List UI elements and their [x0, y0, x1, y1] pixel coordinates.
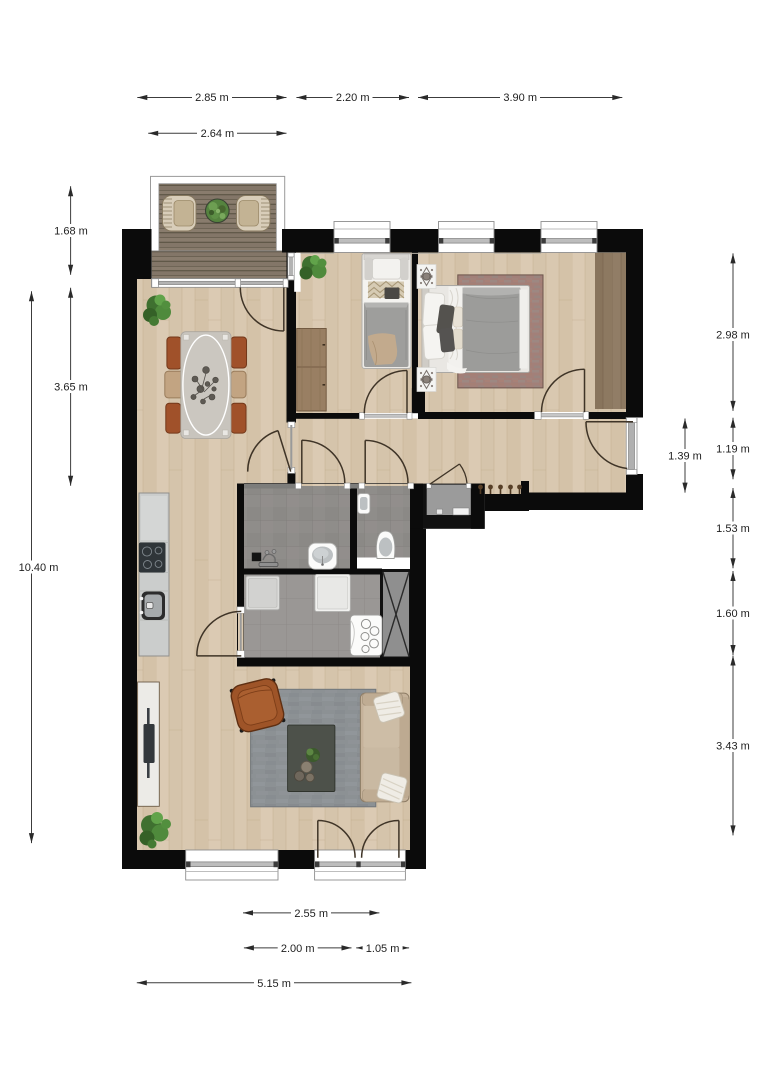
svg-text:1.05 m: 1.05 m	[366, 943, 400, 955]
svg-text:2.98 m: 2.98 m	[716, 330, 750, 342]
svg-text:1.53 m: 1.53 m	[716, 523, 750, 535]
svg-text:2.20 m: 2.20 m	[336, 92, 370, 104]
svg-text:1.68 m: 1.68 m	[54, 226, 88, 238]
svg-text:2.55 m: 2.55 m	[294, 908, 328, 920]
svg-text:2.00 m: 2.00 m	[281, 943, 315, 955]
svg-text:3.65 m: 3.65 m	[54, 382, 88, 394]
svg-text:3.90 m: 3.90 m	[503, 92, 537, 104]
svg-text:5.15 m: 5.15 m	[257, 978, 291, 990]
svg-text:3.43 m: 3.43 m	[716, 741, 750, 753]
svg-text:10.40 m: 10.40 m	[19, 562, 59, 574]
svg-text:1.60 m: 1.60 m	[716, 608, 750, 620]
svg-text:1.19 m: 1.19 m	[716, 444, 750, 456]
svg-text:2.64 m: 2.64 m	[201, 128, 235, 140]
svg-text:2.85 m: 2.85 m	[195, 92, 229, 104]
svg-text:1.39 m: 1.39 m	[668, 451, 702, 463]
